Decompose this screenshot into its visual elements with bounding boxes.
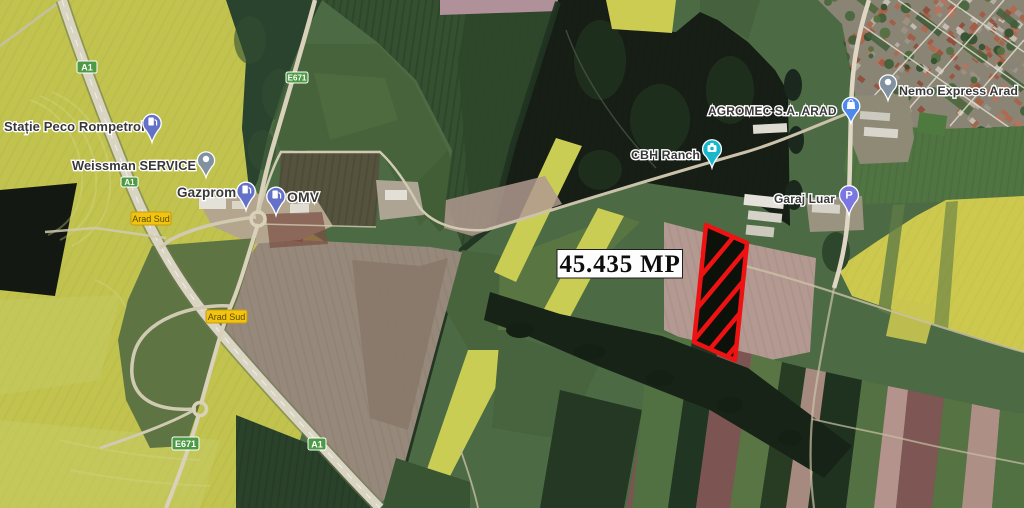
- svg-text:Gazprom: Gazprom: [177, 185, 236, 200]
- svg-text:A1: A1: [81, 63, 93, 73]
- svg-text:A1: A1: [311, 440, 323, 450]
- svg-text:Arad Sud: Arad Sud: [132, 214, 170, 224]
- svg-text:E671: E671: [175, 439, 196, 449]
- svg-text:CBH Ranch: CBH Ranch: [631, 148, 700, 162]
- svg-text:P: P: [845, 190, 852, 202]
- svg-text:E671: E671: [288, 74, 307, 83]
- svg-text:Nemo Express Arad: Nemo Express Arad: [899, 84, 1018, 98]
- svg-text:AGROMEC S.A. ARAD: AGROMEC S.A. ARAD: [708, 104, 837, 118]
- svg-text:OMV: OMV: [287, 189, 320, 205]
- svg-text:Garaj Luar: Garaj Luar: [774, 192, 835, 206]
- svg-text:Stație Peco Rompetrol: Stație Peco Rompetrol: [4, 119, 145, 134]
- svg-text:Weissman SERVICE: Weissman SERVICE: [72, 158, 197, 173]
- svg-text:A1: A1: [124, 178, 135, 187]
- svg-text:Arad Sud: Arad Sud: [208, 312, 246, 322]
- svg-text:45.435 MP: 45.435 MP: [559, 251, 680, 278]
